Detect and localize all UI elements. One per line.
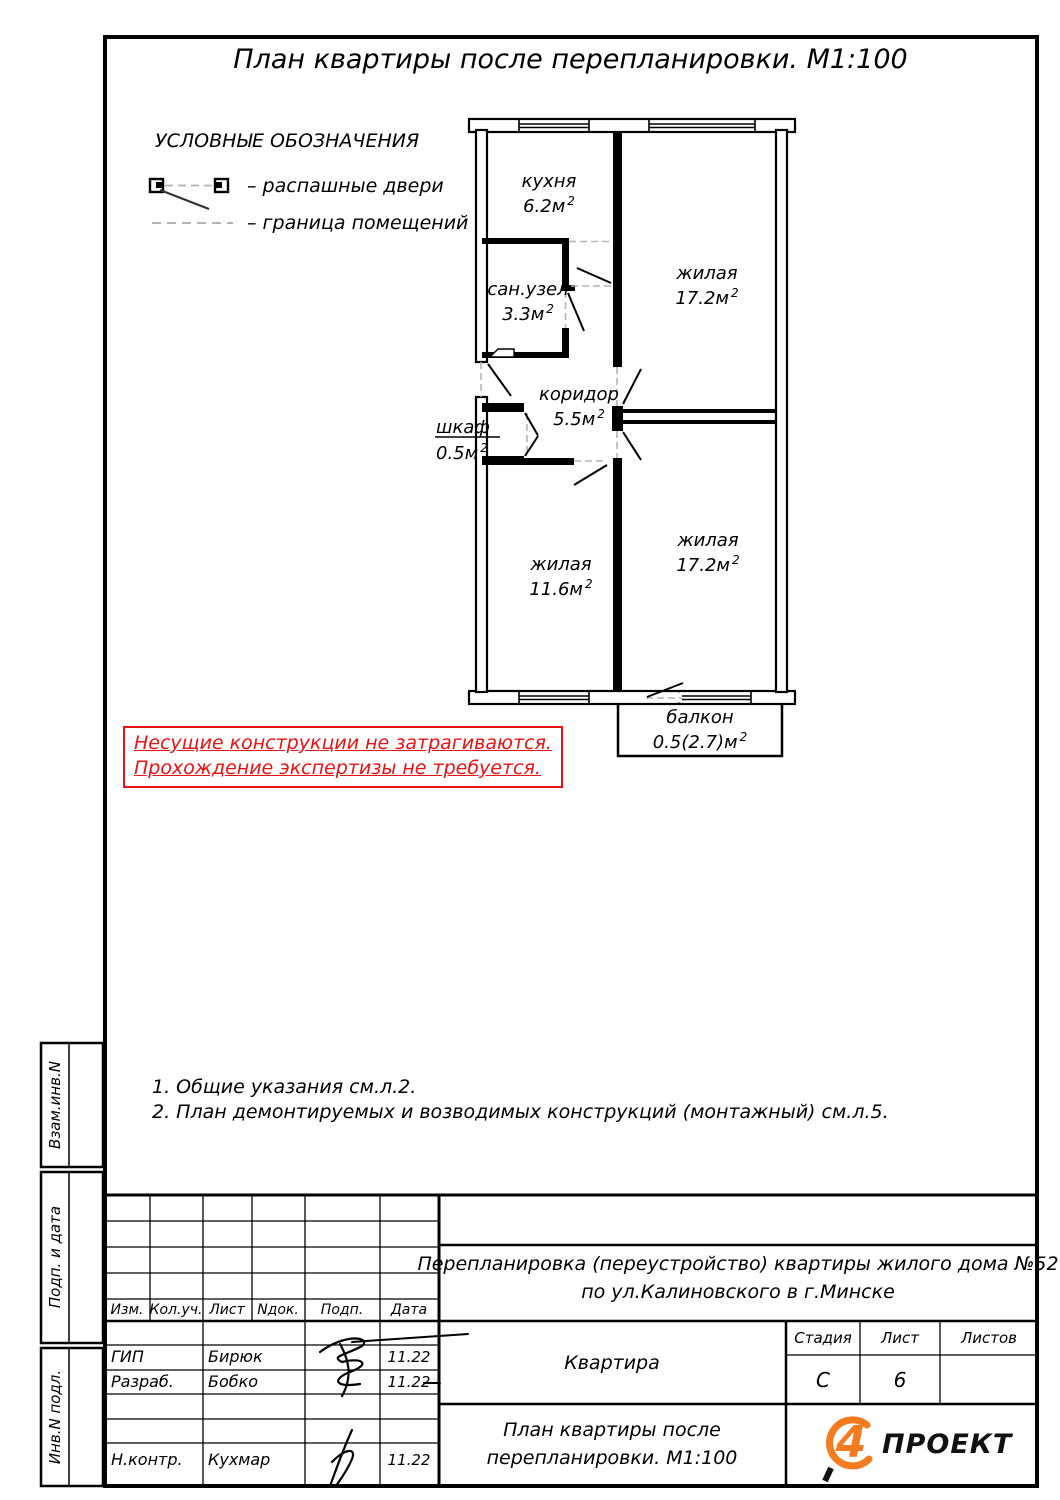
sheets-header: Листов bbox=[961, 1329, 1017, 1347]
living-right-door-leaf bbox=[623, 432, 641, 460]
room-name: сан.узел bbox=[473, 279, 583, 302]
signer-date-razrab: 11.22 bbox=[388, 1373, 431, 1391]
window-kitchen bbox=[519, 120, 589, 132]
revision-header-kol: Кол.уч. bbox=[150, 1302, 203, 1318]
room-area: 0.5(2.7)м2 bbox=[640, 730, 760, 755]
project-title-line-2: по ул.Калиновского в г.Минске bbox=[581, 1281, 895, 1303]
warning-box: Несущие конструкции не затрагиваются. Пр… bbox=[123, 726, 563, 788]
signature-nkontr bbox=[330, 1430, 353, 1486]
living-left-door-leaf bbox=[574, 465, 607, 485]
revision-header-ndok: Nдок. bbox=[257, 1302, 299, 1318]
room-area: 6.2м2 bbox=[494, 194, 604, 219]
entrance-door-leaf bbox=[488, 364, 511, 396]
room-name: шкаф bbox=[436, 417, 490, 438]
legend-door-label: – распашные двери bbox=[247, 175, 444, 197]
room-name: балкон bbox=[640, 707, 760, 730]
company-logo: 4 ПРОЕКТ bbox=[825, 1417, 1014, 1481]
warning-line-1: Несущие конструкции не затрагиваются. bbox=[134, 731, 552, 756]
room-label-corridor: коридор 5.5м2 bbox=[524, 384, 634, 431]
project-title-line-1: Перепланировка (переустройство) квартиры… bbox=[417, 1253, 1058, 1275]
window-living-right bbox=[679, 692, 751, 704]
room-area: 11.6м2 bbox=[506, 577, 616, 602]
logo-tick bbox=[825, 1468, 831, 1481]
legend-heading: УСЛОВНЫЕ ОБОЗНАЧЕНИЯ bbox=[155, 130, 419, 152]
revision-header-data: Дата bbox=[391, 1302, 427, 1318]
stage-header: Стадия bbox=[794, 1329, 852, 1347]
room-label-living-left: жилая 11.6м2 bbox=[506, 554, 616, 601]
room-name: жилая bbox=[652, 263, 762, 286]
room-label-living-right: жилая 17.2м2 bbox=[653, 530, 763, 577]
room-label-living-top: жилая 17.2м2 bbox=[652, 263, 762, 310]
legend-door-leaf bbox=[160, 190, 209, 209]
room-area: 5.5м2 bbox=[524, 407, 634, 432]
room-area: 17.2м2 bbox=[652, 286, 762, 311]
revision-header-list: Лист bbox=[209, 1302, 244, 1318]
signer-name-razrab: Бобко bbox=[208, 1372, 258, 1392]
object-name: Квартира bbox=[564, 1352, 660, 1374]
warning-line-2: Прохождение экспертизы не требуется. bbox=[134, 756, 552, 781]
room-name: кухня bbox=[494, 171, 604, 194]
sidebar-label-vzam: Взам.инв.N bbox=[46, 1061, 64, 1149]
room-name: коридор bbox=[524, 384, 634, 407]
room-name: жилая bbox=[653, 530, 763, 553]
logo-text: ПРОЕКТ bbox=[882, 1429, 1014, 1460]
room-label-balcony: балкон 0.5(2.7)м2 bbox=[640, 707, 760, 754]
revision-header-izm: Изм. bbox=[111, 1302, 144, 1318]
stage-value: С bbox=[816, 1368, 830, 1392]
drawing-name-line-2: перепланировки. М1:100 bbox=[487, 1447, 738, 1469]
room-label-bathroom: сан.узел 3.3м2 bbox=[473, 279, 583, 326]
page-title: План квартиры после перепланировки. М1:1… bbox=[103, 44, 1038, 75]
sheet-value: 6 bbox=[894, 1368, 907, 1392]
note-2: 2. План демонтируемых и возводимых конст… bbox=[152, 1101, 889, 1123]
room-area: 0.5м2 bbox=[436, 441, 490, 464]
room-area: 3.3м2 bbox=[473, 302, 583, 327]
sheet-header: Лист bbox=[881, 1329, 919, 1347]
window-living-top bbox=[649, 120, 755, 132]
signer-role-gip: ГИП bbox=[111, 1347, 144, 1367]
signer-role-razrab: Разраб. bbox=[111, 1372, 174, 1392]
legend-boundary-label: – граница помещений bbox=[247, 212, 468, 234]
window-living-left bbox=[519, 692, 589, 704]
signer-role-nkontr: Н.контр. bbox=[111, 1450, 183, 1470]
signer-date-gip: 11.22 bbox=[388, 1348, 431, 1366]
drawing-sheet: 4 ПРОЕКТ План квартиры после перепланиро… bbox=[0, 0, 1060, 1500]
note-1: 1. Общие указания см.л.2. bbox=[152, 1076, 416, 1098]
drawing-name-line-1: План квартиры после bbox=[503, 1419, 721, 1441]
sidebar-label-podp: Подп. и дата bbox=[46, 1206, 64, 1308]
revision-header-podp: Подп. bbox=[321, 1302, 363, 1318]
signer-date-nkontr: 11.22 bbox=[388, 1451, 431, 1469]
signer-name-nkontr: Кухмар bbox=[208, 1450, 270, 1470]
logo-mark: 4 bbox=[835, 1417, 867, 1468]
legend-symbols bbox=[150, 179, 233, 223]
room-name: жилая bbox=[506, 554, 616, 577]
sink-fixture bbox=[490, 349, 514, 357]
room-area: 17.2м2 bbox=[653, 553, 763, 578]
signer-name-gip: Бирюк bbox=[208, 1347, 263, 1367]
room-label-closet: шкаф 0.5м2 bbox=[436, 417, 490, 464]
sidebar-label-inv: Инв.N подл. bbox=[46, 1370, 64, 1464]
room-label-kitchen: кухня 6.2м2 bbox=[494, 171, 604, 218]
